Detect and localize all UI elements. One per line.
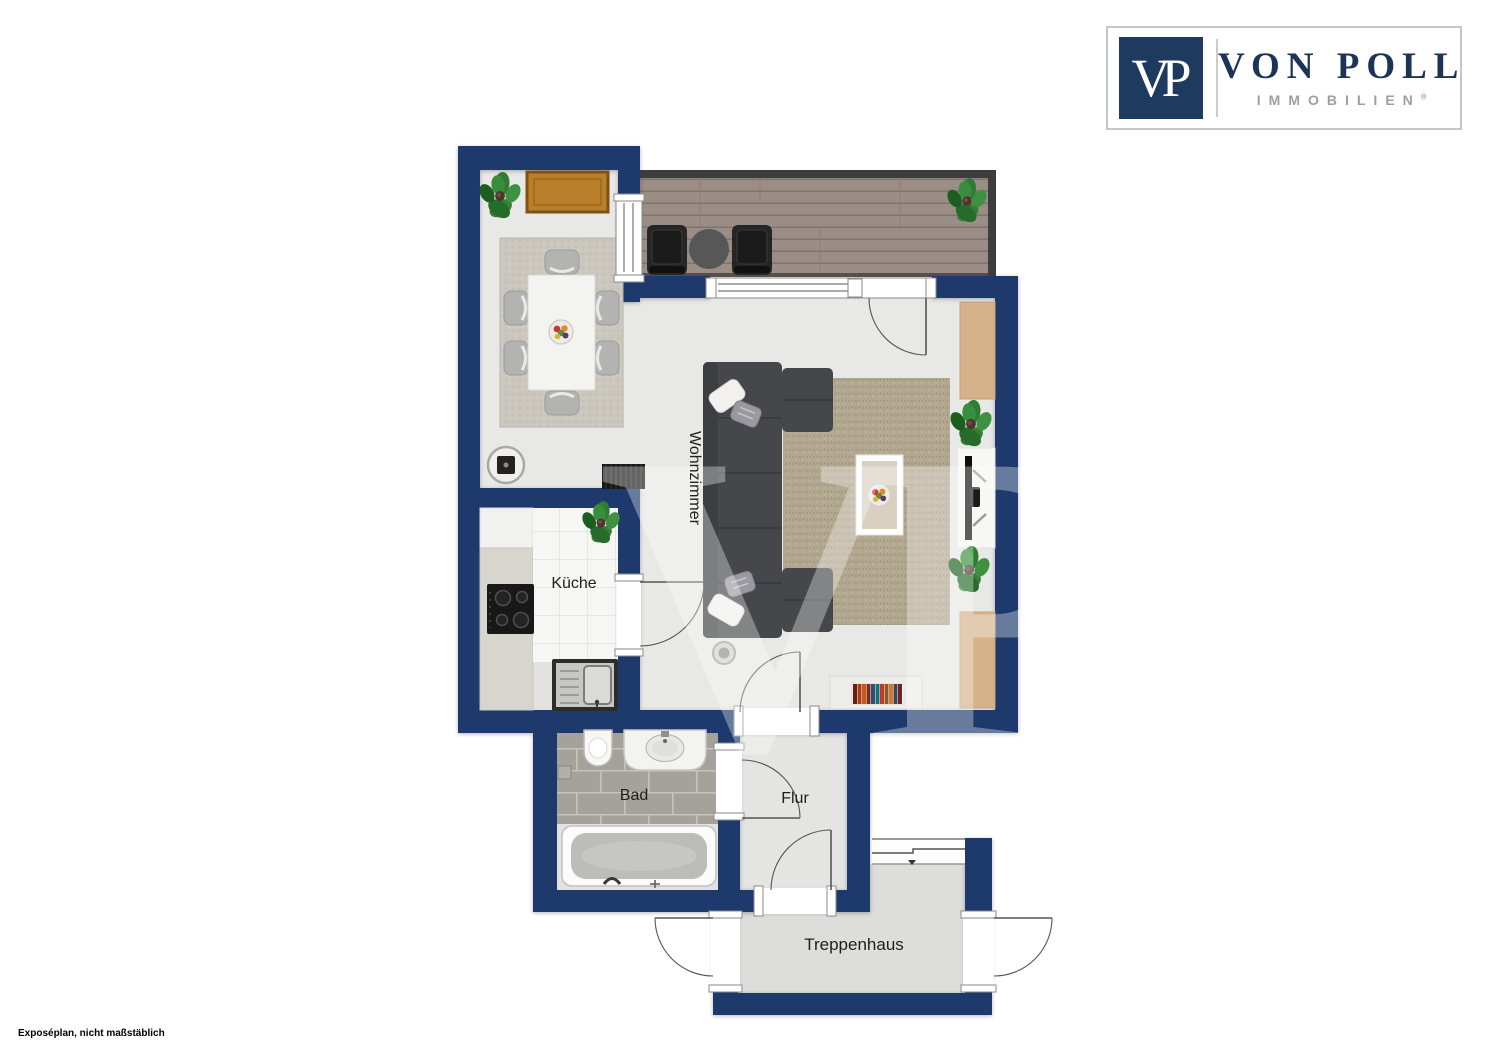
floorplan-page: VP Wohnzimmer Küche Bad Flur Treppenhaus… <box>0 0 1500 1060</box>
balcony <box>640 170 996 277</box>
balcony-chair <box>647 225 687 275</box>
stairs <box>872 838 965 865</box>
balcony-frame-top <box>640 170 996 178</box>
dining-chair <box>545 391 579 415</box>
label-treppenhaus: Treppenhaus <box>804 935 904 954</box>
label-wohnzimmer: Wohnzimmer <box>686 431 703 526</box>
sideboard <box>527 172 608 212</box>
kitchen-cabinet <box>480 508 533 548</box>
dining-chair <box>504 291 528 325</box>
balcony-window-band <box>706 278 936 298</box>
label-flur: Flur <box>781 790 809 807</box>
speaker <box>488 447 524 483</box>
cooktop <box>487 584 534 634</box>
floorplan-drawing: VP Wohnzimmer Küche Bad Flur Treppenhaus <box>0 0 1500 1060</box>
logo-text-block: VON POLL IMMOBILIEN® <box>1218 48 1465 108</box>
wall-shelf <box>558 766 571 779</box>
dining-chair <box>595 291 619 325</box>
label-bad: Bad <box>620 787 648 804</box>
logo-company-name: VON POLL <box>1218 48 1465 85</box>
vp-watermark: VP <box>598 366 1119 842</box>
dining-window <box>614 194 644 282</box>
balcony-table <box>689 229 729 269</box>
treppenhaus-right-door <box>961 911 1052 992</box>
vp-monogram: VP <box>1119 37 1203 119</box>
label-kueche: Küche <box>551 575 596 592</box>
vp-monogram-text: VP <box>1131 47 1190 109</box>
balcony-chair <box>732 225 772 275</box>
logo-subtitle: IMMOBILIEN® <box>1257 92 1427 108</box>
dining-chair <box>504 341 528 375</box>
footer-note: Exposéplan, nicht maßstäblich <box>18 1028 165 1039</box>
fruit-bowl <box>549 320 573 344</box>
registered-mark: ® <box>1421 92 1427 101</box>
treppenhaus-left-door <box>655 911 742 992</box>
balcony-frame-right <box>988 178 996 277</box>
vonpoll-logo: VP VON POLL IMMOBILIEN® <box>1106 26 1462 130</box>
dining-chair <box>545 250 579 274</box>
